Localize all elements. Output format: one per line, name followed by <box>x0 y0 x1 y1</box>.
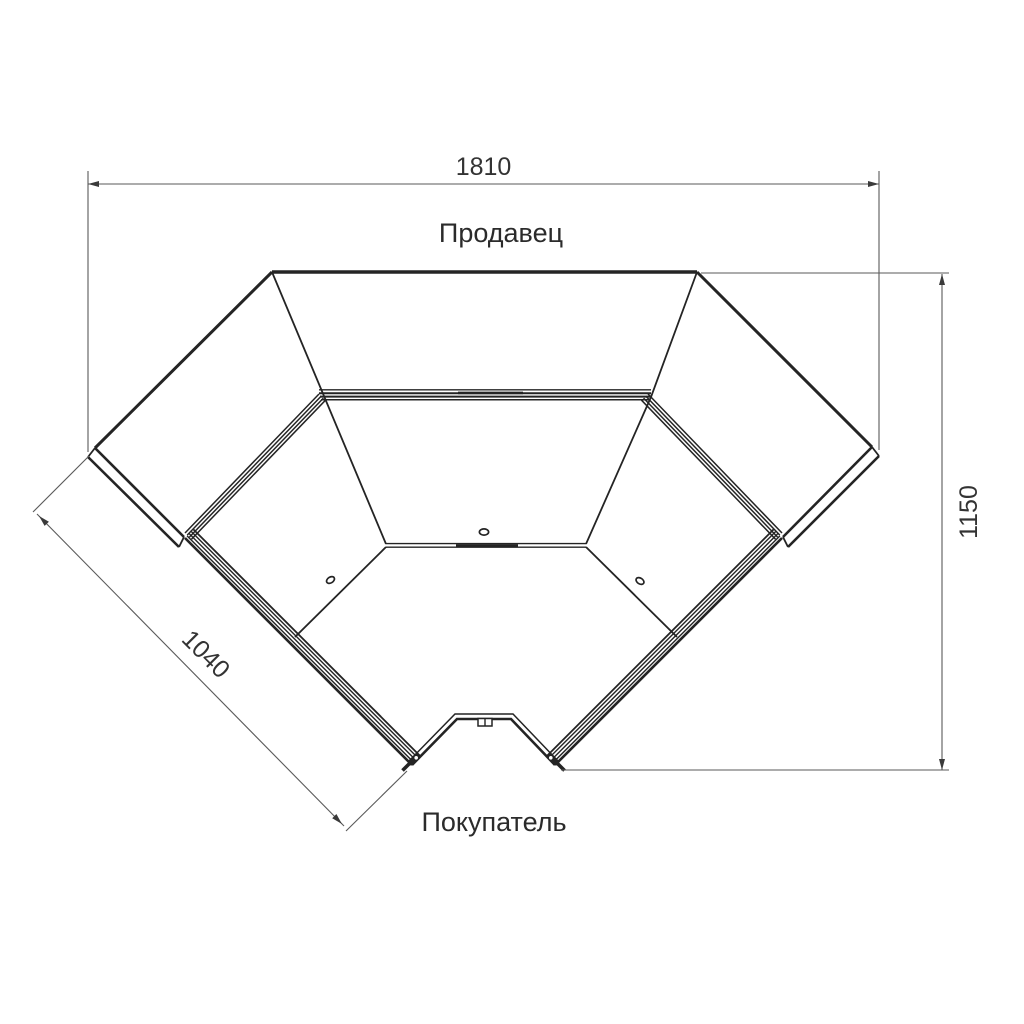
seller-side-label: Продавец <box>439 218 563 248</box>
notch-left-corner-gap <box>414 756 419 761</box>
front-left-glass-band <box>185 530 420 766</box>
front-center-notch <box>403 714 565 771</box>
front-dimension-value: 1040 <box>176 625 235 684</box>
left-end-cap <box>88 448 184 547</box>
front-dimension-line <box>37 514 344 826</box>
depth-dimension-value: 1150 <box>955 485 983 539</box>
floor-divider-left <box>295 547 386 637</box>
dimension-overall-width: 1810 <box>88 153 879 452</box>
technical-drawing-page: 1810 1150 1040 Продавец Покупатель <box>0 0 1024 1024</box>
inner-right-slope-line <box>586 272 697 544</box>
counter-outer-left-edge <box>95 272 272 448</box>
vent-hole-center <box>479 529 488 535</box>
front-right-glass-band <box>547 530 782 766</box>
inner-panel-edges <box>272 272 697 637</box>
counter-outer-right-edge <box>697 272 872 447</box>
vent-hole-right <box>635 576 645 586</box>
width-dimension-value: 1810 <box>456 153 512 181</box>
vent-hole-left <box>325 575 335 585</box>
width-arrow-left <box>88 181 99 187</box>
rear-wall-band <box>319 390 651 400</box>
corner-counter-plan-drawing: 1810 1150 1040 Продавец Покупатель <box>0 0 1024 1024</box>
counter-outline <box>95 272 872 448</box>
buyer-side-label: Покупатель <box>421 807 566 837</box>
front-extension-bottom <box>346 771 407 831</box>
front-extension-top <box>33 456 89 512</box>
floor-divider-right <box>586 547 677 637</box>
right-end-cap <box>783 447 879 547</box>
width-arrow-right <box>868 181 879 187</box>
left-side-glass-band <box>185 394 326 539</box>
right-side-glass-band <box>642 394 783 539</box>
inner-left-slope-line <box>272 272 386 544</box>
notch-right-corner-gap <box>549 756 554 761</box>
depth-arrow-top <box>939 274 945 285</box>
dimension-front-section: 1040 <box>33 456 407 831</box>
depth-arrow-bottom <box>939 759 945 770</box>
